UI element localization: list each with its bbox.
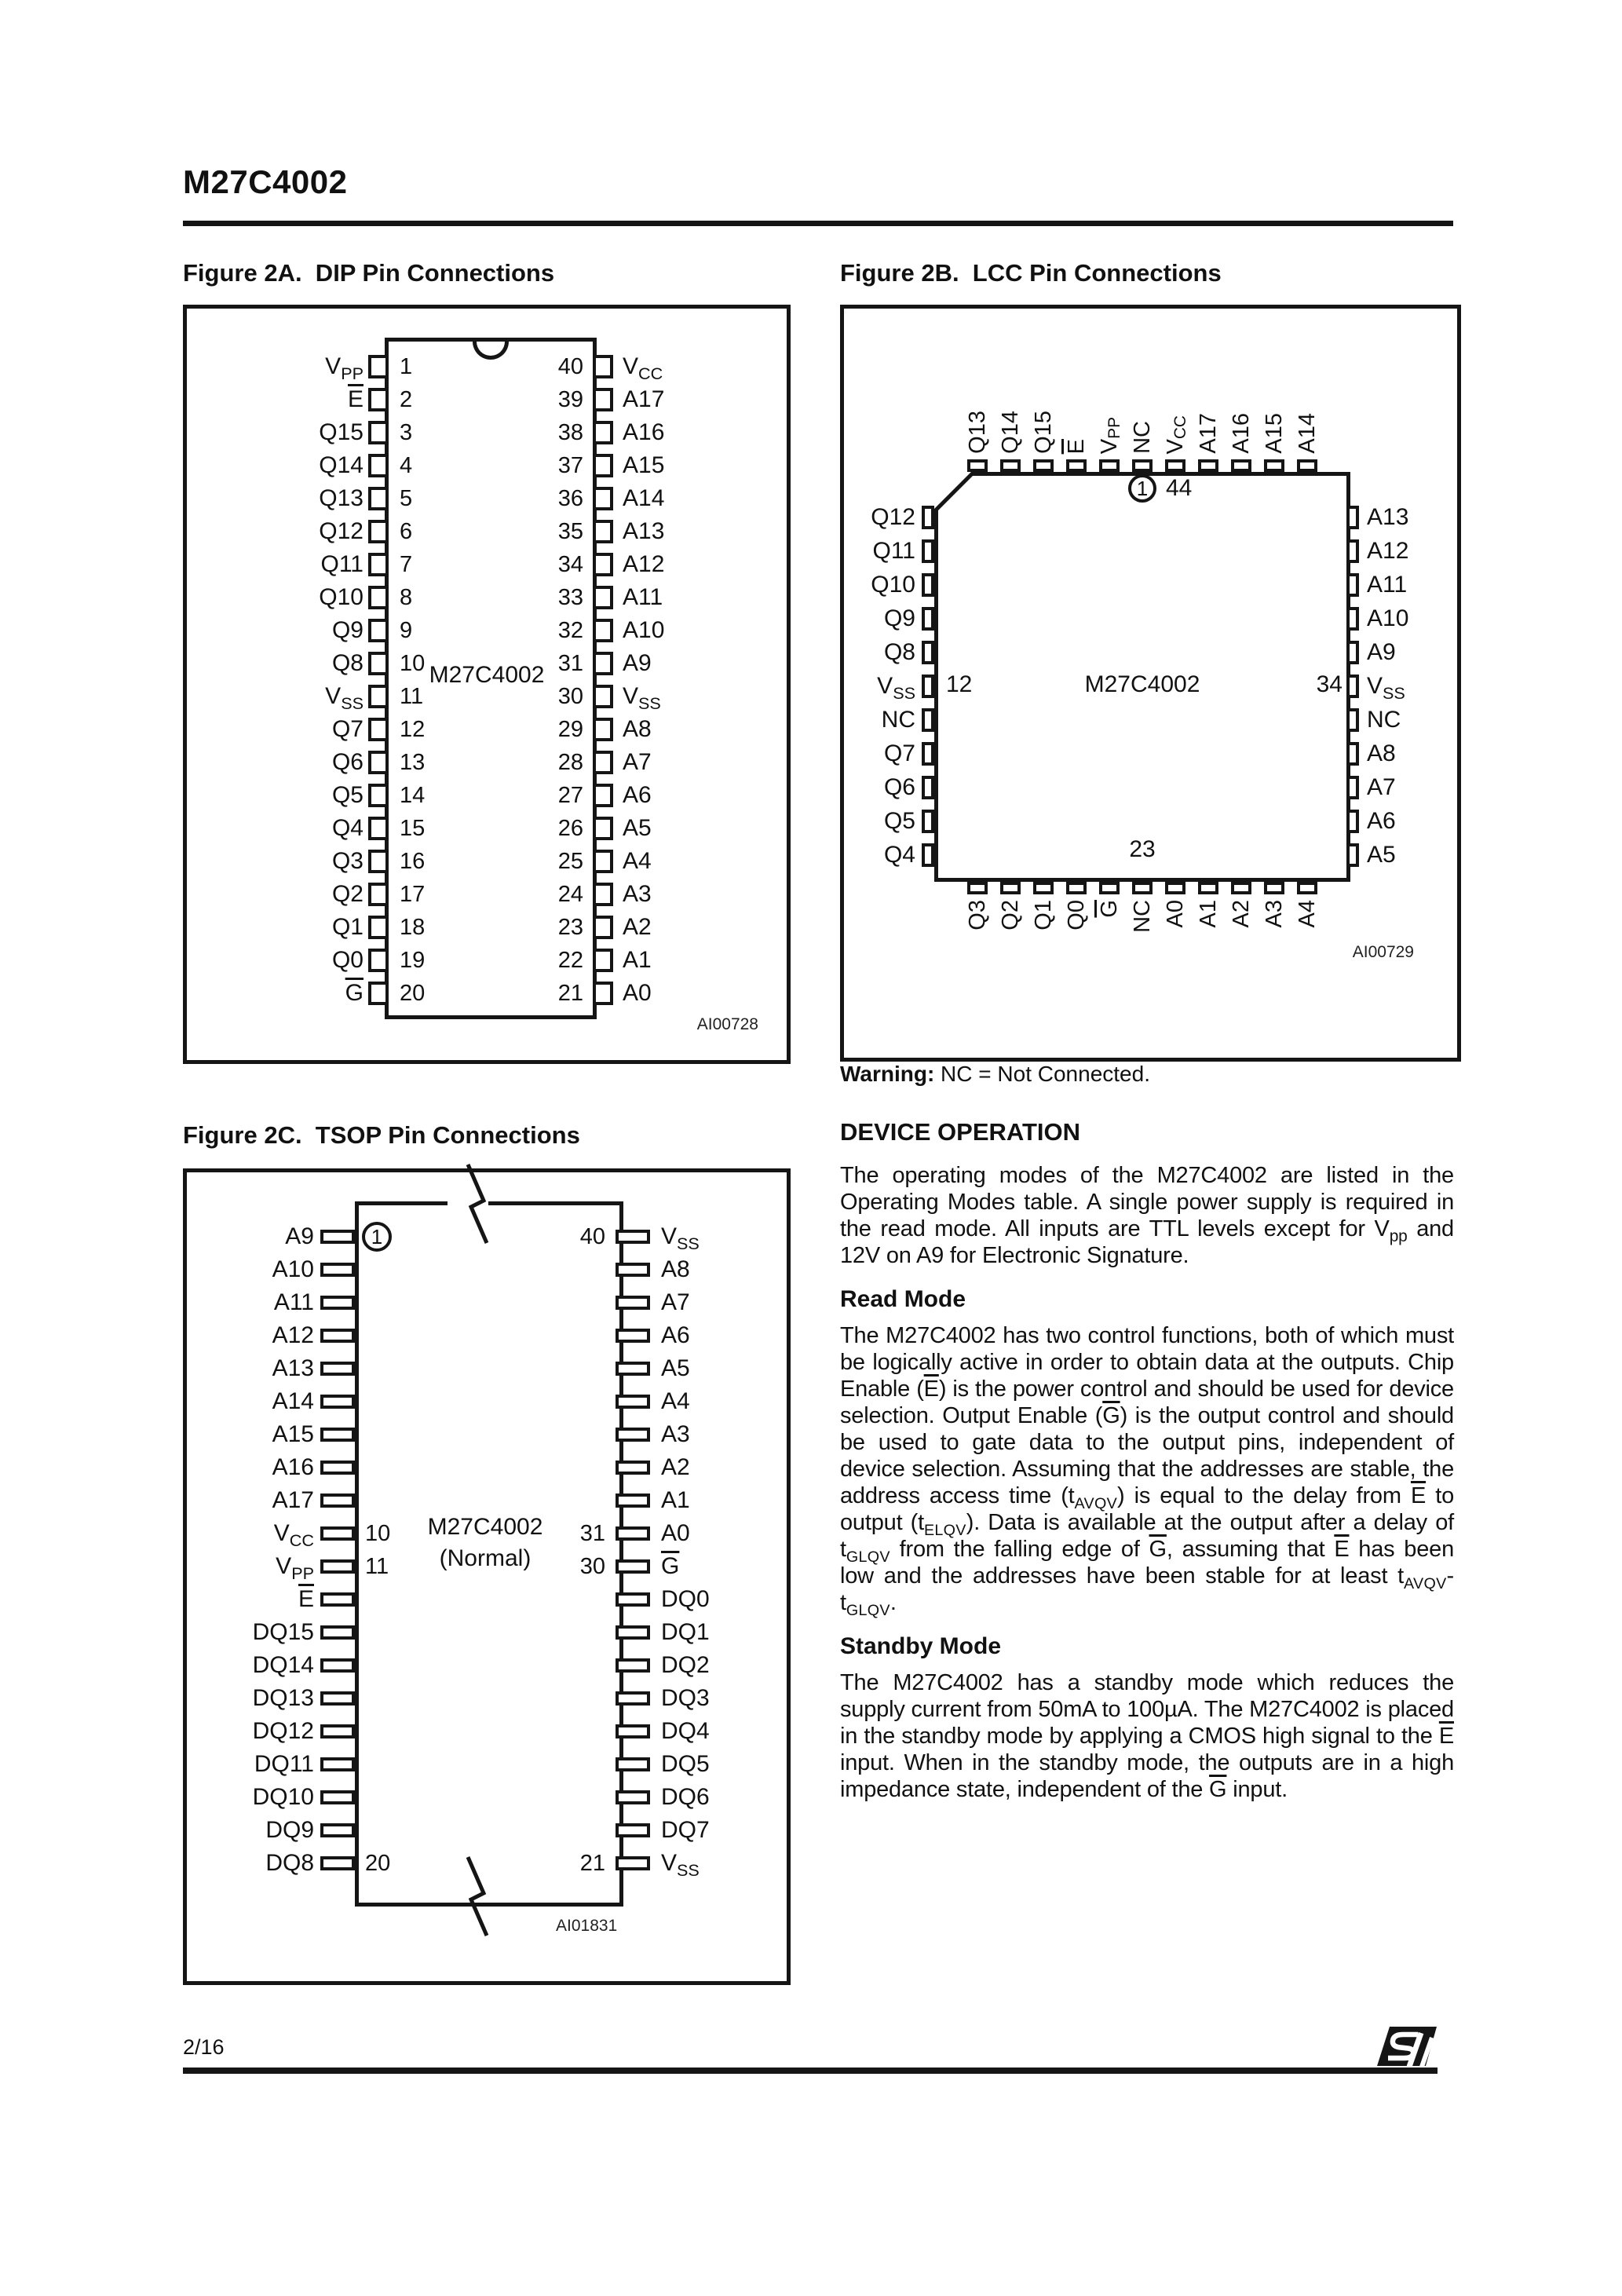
lcc-pin-row: Q6 A7: [844, 770, 1449, 804]
pin-label-left: DQ8: [187, 1850, 320, 1877]
pin-label-right: A14: [613, 485, 779, 512]
pin-stub-right: [616, 1823, 650, 1837]
dip-pin-row: Q3 16 25 A4: [187, 845, 779, 878]
pin-label-right: A5: [650, 1355, 779, 1382]
dip-pin-row: Q1 18 23 A2: [187, 911, 779, 944]
pin-number-right: 23: [542, 915, 593, 941]
pin-stub-top: [1066, 459, 1087, 472]
pin-label-right: DQ2: [650, 1652, 779, 1679]
lcc-pin-row: Q11 A12: [844, 534, 1449, 568]
pin-label-left: DQ15: [187, 1619, 320, 1646]
pin-stub-right: [593, 520, 613, 543]
pin-label-right: A12: [1359, 538, 1449, 565]
pin-stub-left: [922, 641, 934, 664]
pin-label-left: Q9: [187, 617, 368, 644]
pin-stub-right: [1346, 708, 1359, 732]
pin-stub-left: [368, 982, 389, 1005]
pin-number-value: 1: [362, 1222, 392, 1252]
pin-stub-left: [368, 784, 389, 807]
pin-number-left: 20: [355, 1851, 405, 1877]
pin-label-right: A9: [1359, 639, 1449, 666]
pin-stub-bottom: [1033, 882, 1054, 894]
pin-label-left: Q12: [187, 518, 368, 545]
pin-number-right: 28: [542, 750, 593, 776]
pin-number-left: [355, 1587, 405, 1613]
lcc-bottom-pin: G: [1099, 882, 1120, 918]
pin-label-top: A14: [1295, 413, 1321, 454]
lcc-pin-row: Q5 A6: [844, 804, 1449, 838]
pin-label-top: Q15: [1031, 411, 1057, 454]
pin-stub-left: [368, 916, 389, 939]
lcc-pin44-number: 44: [1166, 475, 1192, 502]
tsop-pin-row: DQ10 DQ6: [187, 1781, 779, 1814]
pin-stub-left: [922, 843, 934, 867]
pin-number-right: 40: [542, 354, 593, 380]
pin-label-left: DQ12: [187, 1718, 320, 1745]
pin-number-left: 13: [389, 750, 439, 776]
pin-stub-bottom: [1099, 882, 1120, 894]
tsop-pin-row: A9 1 40 VSS: [187, 1220, 779, 1253]
pin-stub-left: [922, 742, 934, 766]
pin-label-left: DQ13: [187, 1685, 320, 1712]
pin-number-left: [355, 1389, 405, 1415]
pin-number-left: 16: [389, 849, 439, 875]
pin-stub-left: [368, 718, 389, 741]
pin-stub-right: [593, 586, 613, 609]
pin-label-left: E: [187, 1586, 320, 1613]
pin-stub-right: [616, 1559, 650, 1574]
standby-mode-heading: Standby Mode: [840, 1633, 1454, 1660]
pin-number-left: 1: [389, 354, 439, 380]
lcc-bottom-pins: Q3 Q2 Q1 Q0 G: [934, 882, 1350, 1015]
pin-stub-top: [1099, 459, 1120, 472]
warning-note: Warning: NC = Not Connected.: [840, 1062, 1150, 1087]
pin-label-bottom: G: [1097, 900, 1123, 918]
lcc-chip-label: M27C4002: [934, 671, 1350, 698]
pin-number-left: [355, 1356, 405, 1382]
pin-label-left: DQ9: [187, 1817, 320, 1844]
tsop-chip-name: M27C4002: [355, 1512, 616, 1543]
pin-label-right: A1: [650, 1487, 779, 1514]
pin-label-right: A8: [613, 716, 779, 743]
pin-label-left: Q8: [844, 639, 922, 666]
pin-stub-left: [320, 1724, 355, 1738]
pin-stub-bottom: [1000, 882, 1021, 894]
pin-label-left: VPP: [187, 353, 368, 380]
lcc-top-pin: Q14: [1000, 411, 1021, 472]
pin-stub-left: [922, 776, 934, 799]
pin-label-left: A12: [187, 1322, 320, 1349]
pin-label-right: A8: [1359, 740, 1449, 767]
tsop-pin-row: A11 A7: [187, 1286, 779, 1319]
device-operation-section: DEVICE OPERATION The operating modes of …: [840, 1118, 1454, 1803]
pin-number-left: [355, 1818, 405, 1844]
pin-stub-left: [368, 520, 389, 543]
footer-rule: [183, 2067, 1438, 2074]
pin-stub-right: [593, 553, 613, 576]
lcc-pin-row: NC NC: [844, 703, 1449, 737]
pin-number-left: 9: [389, 618, 439, 644]
lcc-top-pin: Q15: [1033, 411, 1054, 472]
pin-number-left: [355, 1785, 405, 1811]
pin-stub-right: [616, 1658, 650, 1673]
figure-2b-box: Q13 Q14 Q15 E VP: [840, 305, 1461, 1062]
pin-stub-left: [320, 1493, 355, 1508]
pin-label-right: DQ3: [650, 1685, 779, 1712]
pin-number-right: 21: [542, 981, 593, 1007]
pin-stub-right: [593, 817, 613, 840]
pin-stub-right: [616, 1296, 650, 1310]
pin-stub-bottom: [967, 882, 988, 894]
pin-label-left: Q4: [844, 842, 922, 868]
figure-2a-drawing-code: AI00728: [697, 1015, 758, 1034]
lcc-top-pin: A16: [1231, 413, 1251, 472]
pin-label-left: A17: [187, 1487, 320, 1514]
pin-label-left: Q3: [187, 848, 368, 875]
pin-number-left: [355, 1323, 405, 1349]
pin-label-right: DQ7: [650, 1817, 779, 1844]
pin-label-left: A11: [187, 1289, 320, 1316]
standby-mode-paragraph: The M27C4002 has a standby mode which re…: [840, 1669, 1454, 1803]
pin-label-right: A7: [650, 1289, 779, 1316]
pin-stub-left: [922, 607, 934, 631]
lcc-pin23-number: 23: [934, 836, 1350, 863]
pin-stub-left: [320, 1329, 355, 1343]
pin-label-left: E: [187, 386, 368, 413]
pin-label-right: VCC: [613, 353, 779, 380]
pin-number-left: [355, 1653, 405, 1679]
pin-label-left: VPP: [187, 1553, 320, 1580]
tsop-pin-row: A16 A2: [187, 1451, 779, 1484]
dip-pin-row: Q4 15 26 A5: [187, 812, 779, 845]
dip-pin-row: Q0 19 22 A1: [187, 944, 779, 977]
pin-label-left: Q13: [187, 485, 368, 512]
pin-label-left: Q11: [187, 551, 368, 578]
pin-stub-right: [593, 718, 613, 741]
pin-label-right: A3: [613, 881, 779, 908]
pin-label-left: A9: [187, 1223, 320, 1250]
pin-number-left: 2: [389, 387, 439, 413]
pin-stub-left: [320, 1526, 355, 1541]
pin-stub-right: [616, 1724, 650, 1738]
tsop-pin-row: DQ13 DQ3: [187, 1682, 779, 1715]
lcc-top-pin: VCC: [1165, 415, 1185, 473]
pin-stub-right: [593, 619, 613, 642]
pin-number-left: 4: [389, 453, 439, 479]
lcc-top-pin: E: [1066, 439, 1087, 472]
tsop-pin-row: DQ9 DQ7: [187, 1814, 779, 1847]
tsop-chip-label: M27C4002 (Normal): [355, 1512, 616, 1574]
tsop-pin-row: A10 A8: [187, 1253, 779, 1286]
tsop-pin-row: DQ8 20 21 VSS: [187, 1847, 779, 1880]
pin-stub-right: [593, 850, 613, 873]
pin-stub-right: [593, 982, 613, 1005]
pin-stub-left: [320, 1658, 355, 1673]
dip-pin-row: G 20 21 A0: [187, 977, 779, 1010]
lcc-top-pin: A17: [1198, 413, 1218, 472]
pin-label-left: A15: [187, 1421, 320, 1448]
lcc-top-pin: A15: [1264, 413, 1284, 472]
pin-label-right: A0: [650, 1520, 779, 1547]
pin-stub-right: [1346, 607, 1359, 631]
pin-label-bottom: A2: [1229, 900, 1255, 927]
tsop-pin-row: A15 A3: [187, 1418, 779, 1451]
pin-label-left: Q15: [187, 419, 368, 446]
pin-stub-left: [922, 708, 934, 732]
pin-stub-left: [320, 1691, 355, 1706]
pin-label-left: NC: [844, 707, 922, 733]
pin-label-bottom: Q0: [1064, 900, 1090, 930]
pin-stub-right: [616, 1757, 650, 1771]
pin-number-left: [355, 1290, 405, 1316]
pin-label-right: A13: [1359, 504, 1449, 531]
pin-number-right: 29: [542, 717, 593, 743]
pin-stub-left: [320, 1625, 355, 1640]
pin-stub-left: [320, 1790, 355, 1804]
tsop-pin-row: A14 A4: [187, 1385, 779, 1418]
pin-number-right: 34: [542, 552, 593, 578]
device-operation-paragraph: The operating modes of the M27C4002 are …: [840, 1162, 1454, 1269]
pin-label-left: Q10: [187, 584, 368, 611]
pin-number-right: 32: [542, 618, 593, 644]
dip-pin-row: VPP 1 40 VCC: [187, 350, 779, 383]
pin-stub-left: [368, 553, 389, 576]
pin-stub-right: [616, 1461, 650, 1475]
pin-number-left: [355, 1752, 405, 1778]
pin-label-right: A2: [650, 1454, 779, 1481]
lcc-bottom-pin: Q1: [1033, 882, 1054, 930]
pin-number-right: 27: [542, 783, 593, 809]
pin-label-left: Q1: [187, 914, 368, 941]
pin-label-left: Q7: [187, 716, 368, 743]
pin-label-top: A17: [1196, 413, 1222, 454]
lcc-bottom-pin: A1: [1198, 882, 1218, 927]
pin-stub-left: [368, 421, 389, 444]
pin-label-right: A16: [613, 419, 779, 446]
pin-label-right: A5: [613, 815, 779, 842]
tsop-pin-row: DQ12 DQ4: [187, 1715, 779, 1748]
pin-label-top: Q13: [965, 411, 991, 454]
pin-number-left: 18: [389, 915, 439, 941]
pin-label-top: VPP: [1097, 417, 1123, 454]
dip-pin-row: Q2 17 24 A3: [187, 878, 779, 911]
pin-stub-left: [368, 454, 389, 477]
tsop-pin-row: DQ14 DQ2: [187, 1649, 779, 1682]
pin-number-right: 37: [542, 453, 593, 479]
pin-number-value: 20: [365, 1851, 390, 1877]
pin-label-right: A10: [1359, 605, 1449, 632]
pin-stub-right: [593, 784, 613, 807]
pin-label-left: A10: [187, 1256, 320, 1283]
pin-stub-left: [320, 1395, 355, 1409]
pin-stub-left: [368, 949, 389, 972]
pin-label-right: A6: [650, 1322, 779, 1349]
pin-stub-top: [1264, 459, 1284, 472]
pin-stub-left: [922, 573, 934, 597]
pin-stub-top: [1198, 459, 1218, 472]
pin-label-left: DQ14: [187, 1652, 320, 1679]
pin-label-top: Q14: [998, 411, 1024, 454]
pin-number-left: 8: [389, 585, 439, 611]
warning-text: NC = Not Connected.: [934, 1062, 1150, 1086]
pin-label-right: DQ6: [650, 1784, 779, 1811]
pin-stub-top: [1000, 459, 1021, 472]
pin-stub-left: [368, 487, 389, 510]
pin-label-left: DQ11: [187, 1751, 320, 1778]
pin-label-right: A7: [613, 749, 779, 776]
pin-label-left: Q8: [187, 650, 368, 677]
dip-pin-row: Q12 6 35 A13: [187, 515, 779, 548]
pin-label-left: Q5: [187, 782, 368, 809]
figure-2a-box: VPP 1 40 VCC E 2 39 A17: [183, 305, 791, 1064]
pin-stub-right: [1346, 742, 1359, 766]
pin-number-left: [355, 1686, 405, 1712]
figure-2c-drawing-code: AI01831: [556, 1917, 617, 1936]
pin-label-right: A8: [650, 1256, 779, 1283]
pin-number-left: [355, 1488, 405, 1514]
pin-stub-left: [368, 817, 389, 840]
pin-stub-right: [593, 949, 613, 972]
lcc-top-pin: A14: [1297, 413, 1317, 472]
pin-number-left: 6: [389, 519, 439, 545]
pin-stub-left: [320, 1559, 355, 1574]
pin-stub-bottom: [1066, 882, 1087, 894]
pin-stub-right: [616, 1230, 650, 1244]
pin-stub-left: [320, 1592, 355, 1607]
tsop-chip-variant: (Normal): [355, 1543, 616, 1574]
pin-stub-right: [593, 454, 613, 477]
lcc-bottom-pin: A0: [1165, 882, 1185, 927]
pin-label-right: A10: [613, 617, 779, 644]
pin-label-right: A17: [613, 386, 779, 413]
lcc-bottom-pin: Q0: [1066, 882, 1087, 930]
pin-stub-right: [616, 1691, 650, 1706]
pin-label-left: VSS: [844, 673, 922, 700]
pin-label-right: A15: [613, 452, 779, 479]
lcc-bottom-pin: A3: [1264, 882, 1284, 927]
dip-pin-row: Q5 14 27 A6: [187, 779, 779, 812]
pin-label-top: A16: [1229, 413, 1255, 454]
pin-stub-right: [593, 685, 613, 708]
pin-number-right: 24: [542, 882, 593, 908]
pin-label-right: A9: [613, 650, 779, 677]
lcc-top-pin: Q13: [967, 411, 988, 472]
lcc-pin-row: Q9 A10: [844, 601, 1449, 635]
pin-number-left: 12: [389, 717, 439, 743]
pin-label-right: VSS: [1359, 673, 1449, 700]
dip-pin-row: Q13 5 36 A14: [187, 482, 779, 515]
lcc-pin-row: Q7 A8: [844, 737, 1449, 770]
pin-label-bottom: NC: [1130, 900, 1156, 933]
pin-label-right: A11: [613, 584, 779, 611]
pin-label-left: Q10: [844, 572, 922, 598]
pin-stub-left: [922, 675, 934, 698]
pin-label-bottom: A0: [1163, 900, 1189, 927]
pin-stub-right: [593, 652, 613, 675]
lcc-top-pin: NC: [1132, 421, 1153, 472]
pin-stub-right: [1346, 506, 1359, 529]
pin-label-left: Q9: [844, 605, 922, 632]
dip-pin-row: Q15 3 38 A16: [187, 416, 779, 449]
tsop-pin-row: E DQ0: [187, 1583, 779, 1616]
warning-label: Warning:: [840, 1062, 934, 1086]
pin-number-left: 17: [389, 882, 439, 908]
pin-stub-top: [1231, 459, 1251, 472]
pin-stub-top: [1033, 459, 1054, 472]
pin-stub-left: [368, 850, 389, 873]
pin-label-right: VSS: [613, 683, 779, 710]
read-mode-heading: Read Mode: [840, 1286, 1454, 1313]
pin-stub-left: [320, 1230, 355, 1244]
pin-number-left: 19: [389, 948, 439, 974]
pin-stub-bottom: [1231, 882, 1251, 894]
pin-stub-right: [1346, 641, 1359, 664]
datasheet-page: M27C4002 Figure 2A. DIP Pin Connections …: [0, 0, 1622, 2296]
pin-stub-right: [1346, 776, 1359, 799]
pin-stub-bottom: [1165, 882, 1185, 894]
pin-stub-right: [616, 1856, 650, 1870]
pin-stub-left: [368, 751, 389, 774]
lcc-top-pin: VPP: [1099, 417, 1120, 472]
lcc-pin1-marker: 1: [1128, 474, 1156, 503]
read-mode-paragraph: The M27C4002 has two control functions, …: [840, 1322, 1454, 1616]
pin-label-bottom: Q3: [965, 900, 991, 930]
pin-stub-right: [593, 751, 613, 774]
pin-stub-left: [368, 388, 389, 411]
dip-pin-row: Q14 4 37 A15: [187, 449, 779, 482]
pin-number-left: [355, 1455, 405, 1481]
pin-label-left: A13: [187, 1355, 320, 1382]
dip-chip-label: M27C4002: [385, 662, 589, 689]
pin-stub-top: [967, 459, 988, 472]
pin-stub-right: [593, 355, 613, 378]
pin-stub-bottom: [1264, 882, 1284, 894]
pin-stub-bottom: [1297, 882, 1317, 894]
pin-label-left: Q4: [187, 815, 368, 842]
lcc-bottom-pin: A2: [1231, 882, 1251, 927]
pin-label-right: DQ5: [650, 1751, 779, 1778]
pin-number-right: 36: [542, 486, 593, 512]
pin-number-left: 7: [389, 552, 439, 578]
pin-number-right: 35: [542, 519, 593, 545]
pin-label-bottom: Q1: [1031, 900, 1057, 930]
pin-label-top: A15: [1262, 413, 1288, 454]
pin-label-left: Q12: [844, 504, 922, 531]
pin-stub-right: [616, 1526, 650, 1541]
pin-stub-left: [320, 1428, 355, 1442]
pin-label-left: Q7: [844, 740, 922, 767]
pin-number-left: 5: [389, 486, 439, 512]
tsop-pin-row: DQ11 DQ5: [187, 1748, 779, 1781]
pin-label-right: A2: [613, 914, 779, 941]
pin-stub-bottom: [1132, 882, 1153, 894]
pin-label-right: DQ1: [650, 1619, 779, 1646]
pin-number-right: 40: [565, 1224, 616, 1250]
pin-label-bottom: A1: [1196, 900, 1222, 927]
pin-label-left: Q6: [844, 774, 922, 801]
tsop-pin-row: A13 A5: [187, 1352, 779, 1385]
lcc-pin-row: Q8 A9: [844, 635, 1449, 669]
pin-label-right: A1: [613, 947, 779, 974]
pin-stub-right: [616, 1329, 650, 1343]
figure-2c-caption: Figure 2C. TSOP Pin Connections: [183, 1121, 580, 1150]
header-rule: [183, 221, 1453, 226]
pin-number-left: 15: [389, 816, 439, 842]
pin-label-right: G: [650, 1553, 779, 1580]
lcc-pin-row: Q12 A13: [844, 500, 1449, 534]
pin-number-left: [355, 1257, 405, 1283]
page-title: M27C4002: [183, 163, 347, 201]
